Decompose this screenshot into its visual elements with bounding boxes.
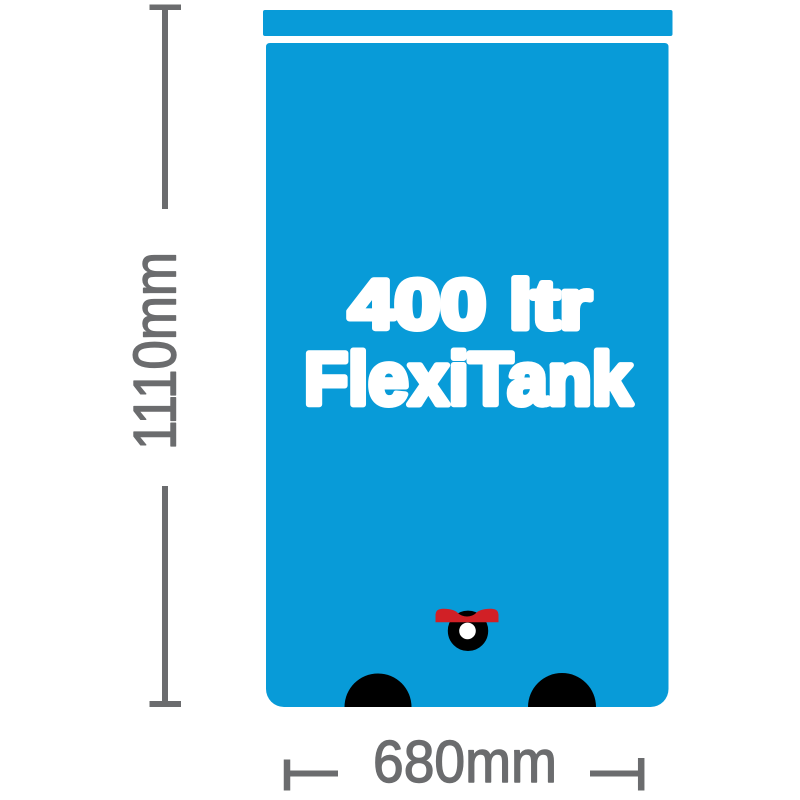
svg-text:680mm: 680mm [373,728,557,795]
svg-text:1110mm: 1110mm [121,252,189,450]
svg-text:FlexiTank: FlexiTank [304,338,633,421]
svg-text:400 ltr: 400 ltr [349,266,592,344]
